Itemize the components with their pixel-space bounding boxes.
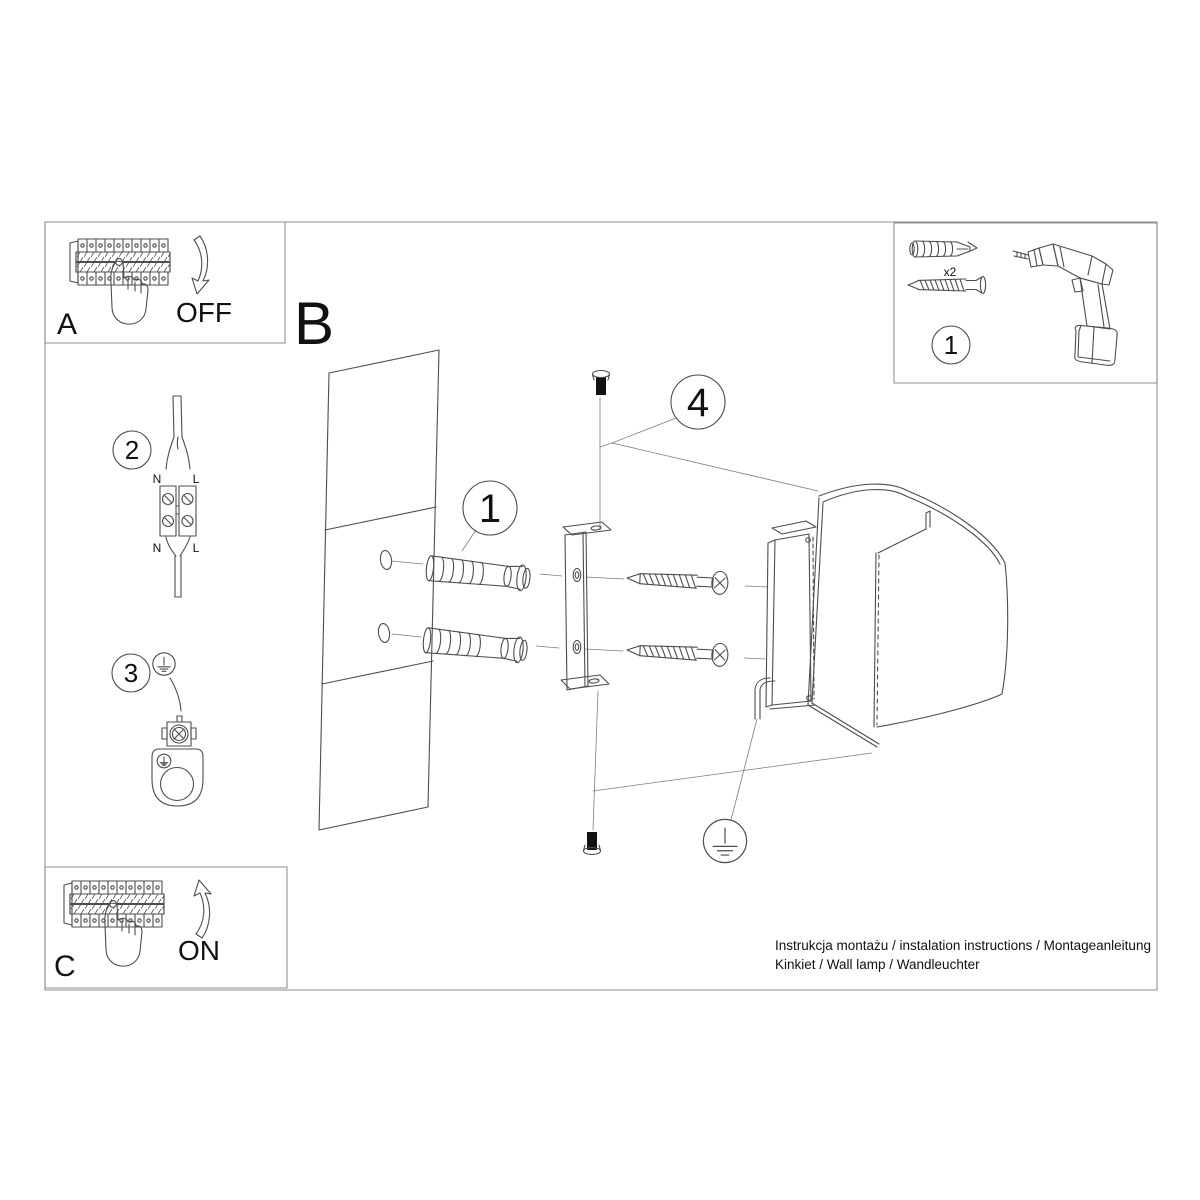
instruction-sheet: A OFF B C ON x2 1 2 3 N L N L 1 4 Instru…: [0, 0, 1200, 1200]
panel-c-label: C: [54, 950, 76, 983]
anchor-qty-label: x2: [944, 265, 957, 279]
fixing-screw-bottom: [584, 832, 601, 855]
lamp-shade: [808, 484, 1008, 747]
wall-hole-top: [379, 550, 393, 570]
on-label: ON: [178, 935, 220, 966]
diagram-canvas: A OFF B C ON x2 1 2 3 N L N L 1 4 Instru…: [0, 0, 1200, 1200]
tools-panel: [894, 223, 1157, 383]
lamp-backplate: [755, 521, 816, 719]
wire-label-l-top: L: [193, 472, 200, 486]
exploded-view: [319, 350, 1008, 863]
projection-line-bottom: [593, 753, 872, 791]
wall-panel: [319, 350, 439, 830]
fixing-screw-top: [593, 371, 610, 396]
section-label-b: B: [294, 290, 334, 357]
step-3-badge-label: 3: [124, 658, 138, 688]
panel-a-border: [45, 222, 285, 343]
projection-line-top: [600, 443, 818, 491]
ground-wire: [170, 678, 181, 711]
terminal-block: [160, 486, 196, 536]
wall-plug-icon: [910, 241, 977, 257]
callout-4-leader: [612, 418, 676, 443]
footer-line1: Instrukcja montażu / instalation instruc…: [775, 938, 1151, 953]
mounting-bracket: [561, 522, 611, 690]
wiring-step: [113, 396, 196, 597]
mounting-screw-bottom: [626, 639, 728, 667]
wire-label-n-top: N: [153, 472, 162, 486]
callout-4-badge-label: 4: [687, 381, 709, 425]
ground-badge-icon: [703, 819, 746, 862]
panel-a-label: A: [57, 308, 77, 341]
callout-1-leader: [462, 530, 476, 551]
wall-plug-bottom: [422, 627, 528, 664]
ground-symbol-icon: [153, 653, 175, 675]
panel-c: [45, 867, 287, 988]
wire-label-n-bottom: N: [153, 541, 162, 555]
ground-terminal: [162, 716, 196, 746]
step-1-badge-label: 1: [944, 330, 958, 360]
center-lines: [391, 398, 872, 830]
wire-label-l-bottom: L: [193, 541, 200, 555]
sheet-frame: [45, 222, 1157, 990]
power-cable: [166, 396, 190, 469]
step-2-badge-label: 2: [125, 435, 139, 465]
inner-sheet-bottom: [808, 703, 879, 747]
mounting-plate: [152, 749, 203, 806]
callout-1-badge-label: 1: [479, 487, 501, 531]
mounting-screw-top: [626, 567, 728, 595]
footer-line2: Kinkiet / Wall lamp / Wandleuchter: [775, 957, 980, 972]
screw-axis-line-bottom: [593, 691, 598, 830]
arrow-up-icon: [194, 880, 211, 938]
tools-panel-border: [894, 223, 1157, 383]
arrow-down-icon: [192, 236, 209, 294]
wall-hole-bottom: [377, 623, 391, 643]
off-label: OFF: [176, 297, 232, 328]
text-layer: A OFF B C ON x2 1 2 3 N L N L 1 4 Instru…: [54, 265, 1151, 983]
panel-a: [45, 222, 285, 343]
power-cable-bottom: [166, 537, 190, 597]
drill-icon: [1013, 244, 1117, 365]
wall-plug-top: [425, 555, 531, 592]
screw-icon: [908, 277, 986, 294]
